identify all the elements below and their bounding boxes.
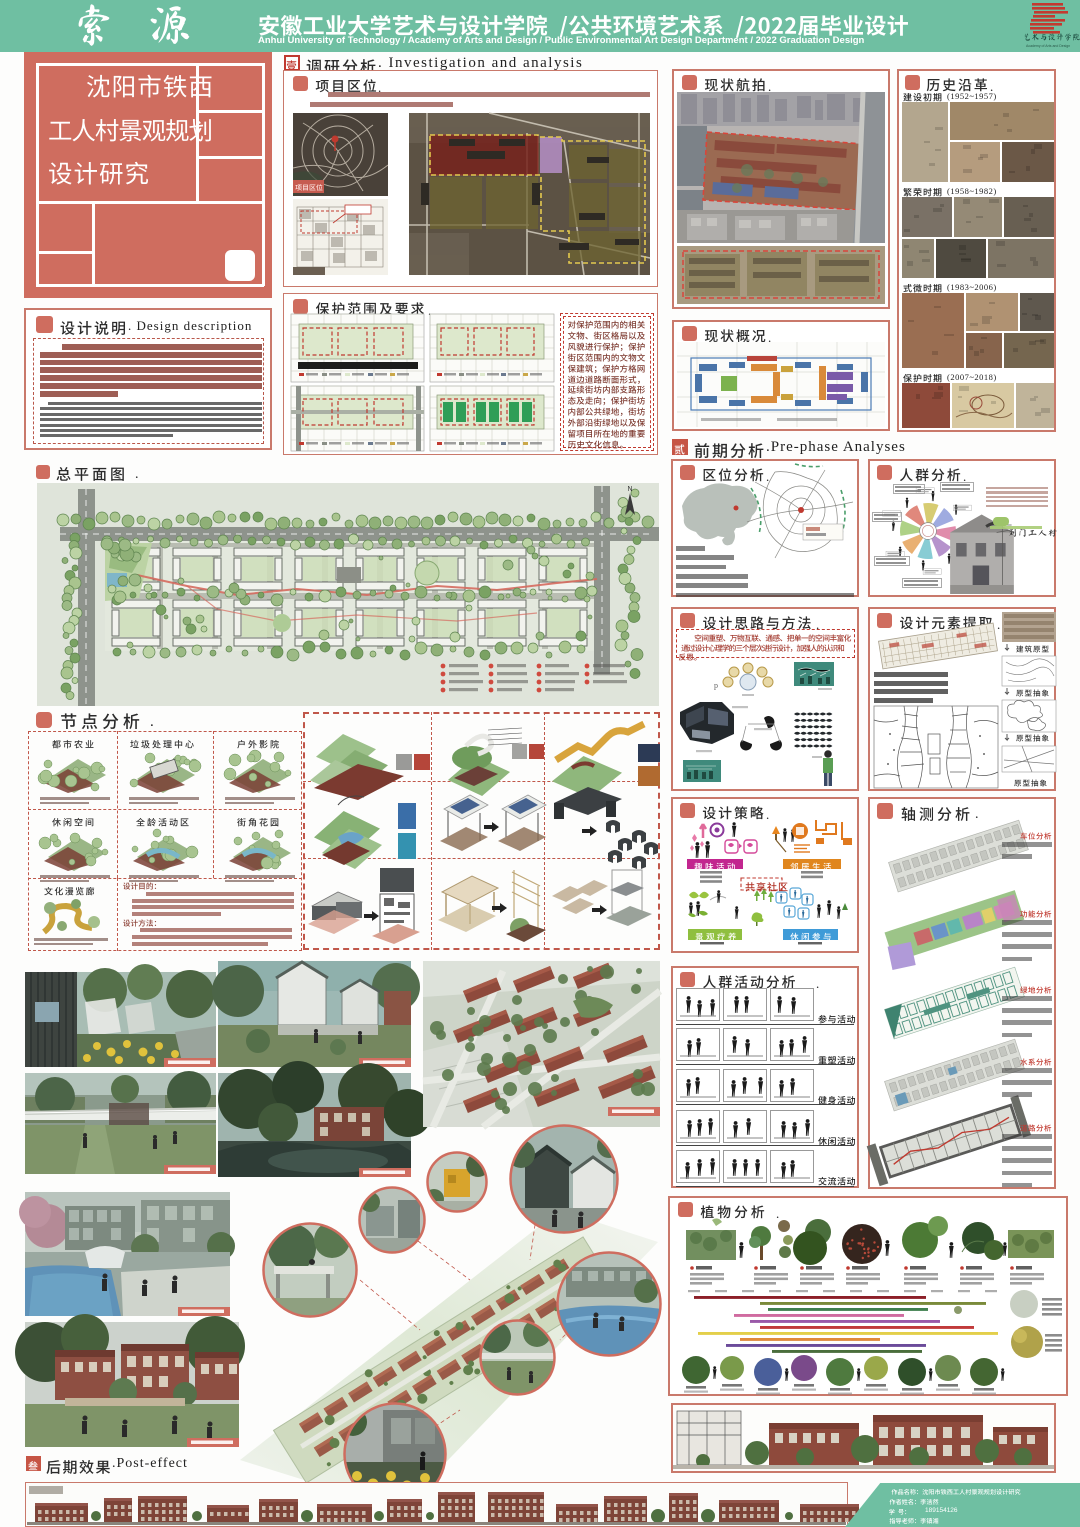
svg-text:N: N (627, 486, 632, 493)
svg-text:p: p (714, 681, 718, 690)
